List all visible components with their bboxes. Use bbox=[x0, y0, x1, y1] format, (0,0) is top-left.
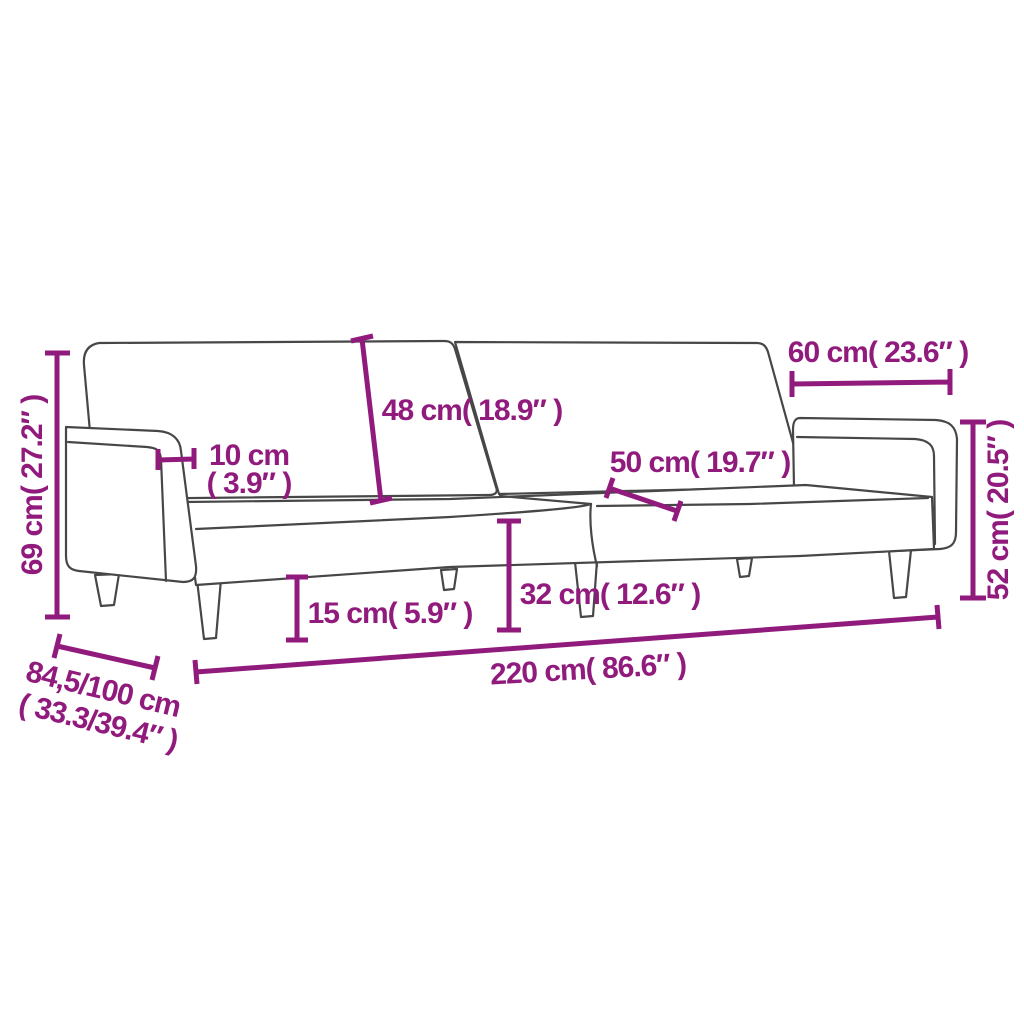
sofa-leg bbox=[441, 569, 457, 590]
dim-label-seat-depth: 50 cm( 19.7″ ) bbox=[610, 448, 790, 478]
seat-base bbox=[185, 485, 934, 585]
sofa-leg bbox=[889, 550, 911, 598]
dim-label-seat-height: 32 cm( 12.6″ ) bbox=[520, 580, 700, 610]
dim-label-leg-height: 15 cm( 5.9″ ) bbox=[308, 599, 473, 629]
sofa-leg bbox=[737, 558, 752, 577]
dim-label-backrest-height: 48 cm( 18.9″ ) bbox=[382, 396, 562, 426]
dim-label-total-height: 69 cm( 27.2″ ) bbox=[18, 395, 48, 575]
armrest-left bbox=[66, 427, 196, 582]
sofa-leg bbox=[197, 579, 221, 639]
dim-label-armrest-height: 52 cm( 20.5″ ) bbox=[984, 420, 1014, 600]
dimension-diagram: 69 cm( 27.2″ ) 10 cm ( 3.9″ ) 48 cm( 18.… bbox=[0, 0, 1024, 1024]
dim-line-armrest-length bbox=[792, 369, 950, 397]
sofa-line-art bbox=[0, 0, 1024, 1024]
dim-label-armrest-length: 60 cm( 23.6″ ) bbox=[788, 338, 968, 368]
dim-line-leg-height bbox=[286, 577, 308, 640]
dim-label-armrest-width-line2: ( 3.9″ ) bbox=[207, 469, 292, 499]
sofa-leg bbox=[95, 574, 119, 606]
